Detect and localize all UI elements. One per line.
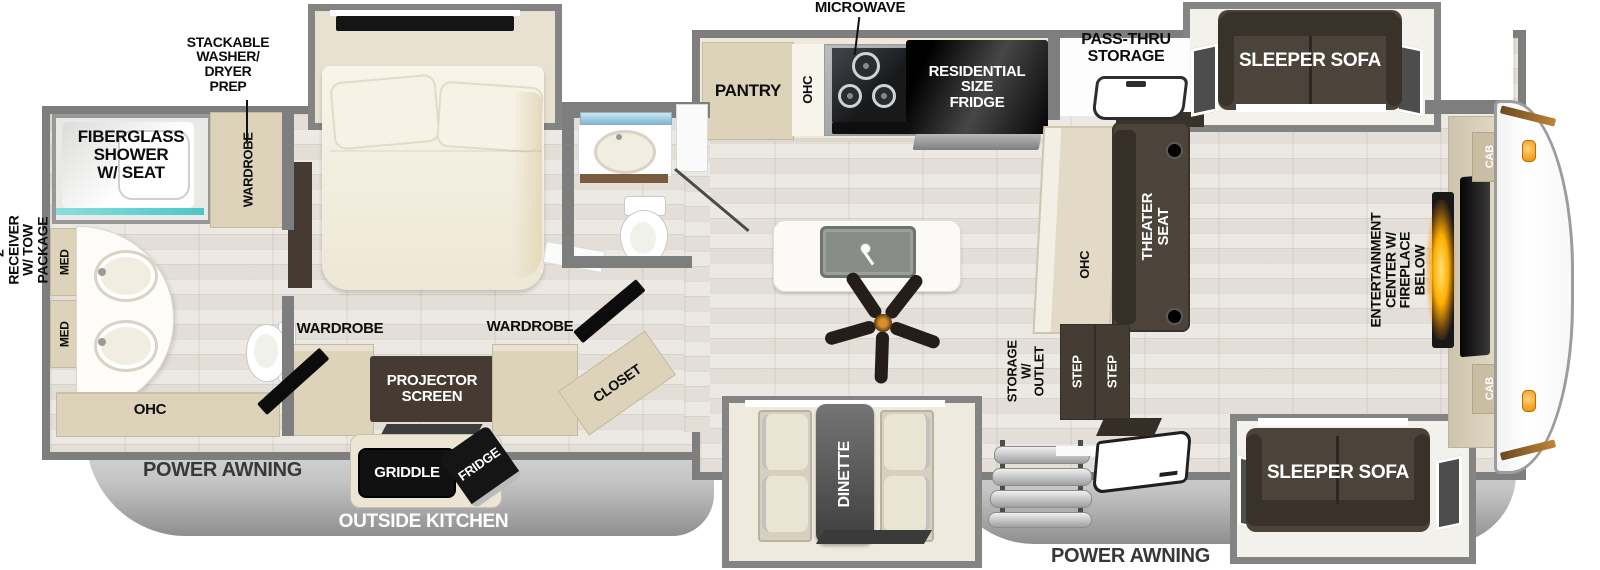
living-ohc-label: OHC (1078, 251, 1092, 279)
residential-fridge: RESIDENTIAL SIZE FRIDGE (906, 40, 1048, 134)
dinette-cushion (762, 476, 808, 532)
bedroom-wardrobe-left (286, 344, 374, 436)
griddle-label: GRIDDLE (374, 465, 439, 481)
faucet-icon (98, 268, 106, 276)
bed-window-icon (336, 16, 514, 31)
tv-icon (1460, 175, 1490, 358)
step-right-label: STEP (1106, 356, 1120, 389)
outside-kitchen-label-wrap: OUTSIDE KITCHEN (326, 510, 521, 534)
rear-bath-wardrobe: WARDROBE (210, 112, 286, 228)
entry-step (992, 468, 1092, 486)
midbath-left-wall (562, 102, 574, 268)
receiver-label-text: 2" RECEIVER W/ TOW PACKAGE (0, 215, 50, 284)
marker-light-icon (1522, 140, 1536, 162)
washer-dryer-leader-line (246, 100, 248, 142)
sofa-top-opening-trim (1236, 104, 1386, 112)
fridge-divider-wall (1048, 38, 1060, 120)
pantry-label: PANTRY (715, 82, 781, 100)
theater-seat-label-wrap: THEATER SEAT (1126, 160, 1186, 294)
outside-griddle: GRIDDLE (358, 448, 456, 498)
front-top-wall (1425, 100, 1505, 114)
window-icon (1191, 43, 1218, 117)
projector-screen: PROJECTOR SCREEN (370, 356, 494, 422)
sofa-bottom-opening-trim (1258, 418, 1408, 426)
sofa-top-label-wrap: SLEEPER SOFA (1234, 50, 1386, 72)
vanity-sink-lower (94, 320, 158, 372)
window-icon (1436, 455, 1462, 531)
burner-icon (838, 84, 862, 108)
rear-bath-ohc-label-text: OHC (134, 402, 166, 418)
fireplace-glow-icon (1426, 200, 1456, 340)
bedroom-wardrobe-right-label-text: WARDROBE (487, 319, 574, 335)
ceiling-fan-hub-icon (874, 314, 892, 332)
floorplan-canvas: FIBERGLASS SHOWER W/ SEAT WARDROBE STACK… (0, 0, 1600, 570)
entertainment-label: ENTERTAINMENT CENTER W/ FIREPLACE BELOW (1368, 213, 1426, 328)
closet-label: CLOSET (590, 361, 643, 404)
pantry: PANTRY (702, 42, 794, 140)
burner-icon (852, 52, 880, 80)
residential-fridge-label: RESIDENTIAL SIZE FRIDGE (929, 64, 1026, 111)
cup-holder-icon (1166, 142, 1183, 159)
vanity-sink-upper (94, 250, 158, 302)
microwave-label-text: MICROWAVE (815, 0, 905, 16)
burner-icon (872, 84, 896, 108)
med-upper-label: MED (59, 249, 71, 275)
midbath-sink-icon (594, 130, 656, 174)
midbath-sink-base (580, 174, 668, 183)
dinette-cushion (762, 414, 808, 470)
pass-thru-door-handle (1126, 81, 1146, 87)
oven-front (832, 122, 910, 134)
shower-label: FIBERGLASS SHOWER W/ SEAT (58, 124, 204, 186)
blanket-fold (512, 92, 542, 278)
med-lower-label: MED (59, 321, 71, 347)
entry-step (990, 490, 1092, 508)
outside-kitchen-label: OUTSIDE KITCHEN (339, 512, 509, 532)
midbath-door-jamb (676, 104, 708, 172)
step-left: STEP (1060, 324, 1095, 420)
dinette-label: DINETTE (837, 441, 854, 507)
outside-fridge-label: FRIDGE (456, 445, 503, 483)
washer-dryer-label-text: STACKABLE WASHER/ DRYER PREP (187, 35, 270, 93)
entry-door-handle (1159, 471, 1177, 477)
shower-label-text: FIBERGLASS SHOWER W/ SEAT (78, 128, 185, 181)
theater-seat-label: THEATER SEAT (1140, 193, 1171, 261)
dinette-skirt (816, 530, 932, 544)
step-landing (1096, 418, 1162, 436)
bedroom-wardrobe-left-label-text: WARDROBE (297, 321, 384, 337)
bath-bedroom-wall-upper (282, 112, 294, 230)
ceiling-fan-blade (874, 331, 889, 383)
kitchen-ohc: OHC (792, 44, 824, 136)
power-awning-left-label-wrap: POWER AWNING (130, 458, 315, 482)
microwave-label: MICROWAVE (794, 0, 926, 16)
step-left-label: STEP (1071, 356, 1085, 389)
fridge-base (913, 134, 1042, 150)
sofa-back-cushion (1222, 12, 1398, 36)
sofa-armrest (1218, 16, 1234, 106)
rear-bath-wardrobe-label: WARDROBE (241, 133, 255, 208)
entry-step (988, 512, 1092, 528)
blanket-crease (330, 150, 542, 152)
step-right: STEP (1095, 324, 1130, 420)
rear-bath-ohc-label: OHC (110, 400, 190, 420)
midbath-bottom-wall (562, 256, 692, 268)
projector-screen-label: PROJECTOR SCREEN (387, 373, 477, 404)
midbath-toilet-bowl (630, 222, 656, 254)
entertainment-label-wrap: ENTERTAINMENT CENTER W/ FIREPLACE BELOW (1366, 180, 1428, 360)
pass-thru-label-text: PASS-THRU STORAGE (1081, 32, 1170, 65)
storage-outlet-label: STORAGE W/ OUTLET (1006, 340, 1047, 402)
sofa-bottom-label-wrap: SLEEPER SOFA (1258, 462, 1418, 484)
living-ohc-label-wrap: OHC (1070, 230, 1100, 300)
power-awning-right-label-wrap: POWER AWNING (1038, 544, 1223, 568)
pillow (329, 74, 441, 151)
faucet-icon (98, 338, 106, 346)
projector-screen-base (381, 424, 482, 434)
washer-dryer-label: STACKABLE WASHER/ DRYER PREP (156, 28, 300, 100)
sofa-bottom-label: SLEEPER SOFA (1267, 463, 1409, 483)
power-awning-right-label: POWER AWNING (1051, 546, 1210, 567)
kitchen-ohc-label: OHC (801, 76, 815, 104)
power-awning-left-label: POWER AWNING (143, 460, 302, 481)
bath-bedroom-wall-lower (282, 296, 294, 436)
dinette-cushion (884, 414, 930, 470)
shower-glass (56, 208, 204, 215)
faucet-icon (616, 134, 622, 140)
marker-light-icon (1522, 390, 1536, 412)
bedroom-wardrobe-right-label: WARDROBE (474, 319, 586, 335)
midbath-mirror (580, 112, 672, 125)
cup-holder-icon (1166, 308, 1183, 325)
dinette-cushion (884, 476, 930, 532)
rear-toilet-bowl (254, 334, 278, 368)
pass-thru-label: PASS-THRU STORAGE (1062, 30, 1190, 68)
storage-outlet-label-wrap: STORAGE W/ OUTLET (1002, 322, 1050, 420)
sofa-top-label: SLEEPER SOFA (1239, 51, 1381, 71)
receiver-label: 2" RECEIVER W/ TOW PACKAGE (0, 160, 42, 340)
sofa-armrest (1386, 16, 1402, 106)
bedroom-wardrobe-left-label: WARDROBE (284, 321, 396, 337)
dinette-table: DINETTE (816, 404, 874, 544)
